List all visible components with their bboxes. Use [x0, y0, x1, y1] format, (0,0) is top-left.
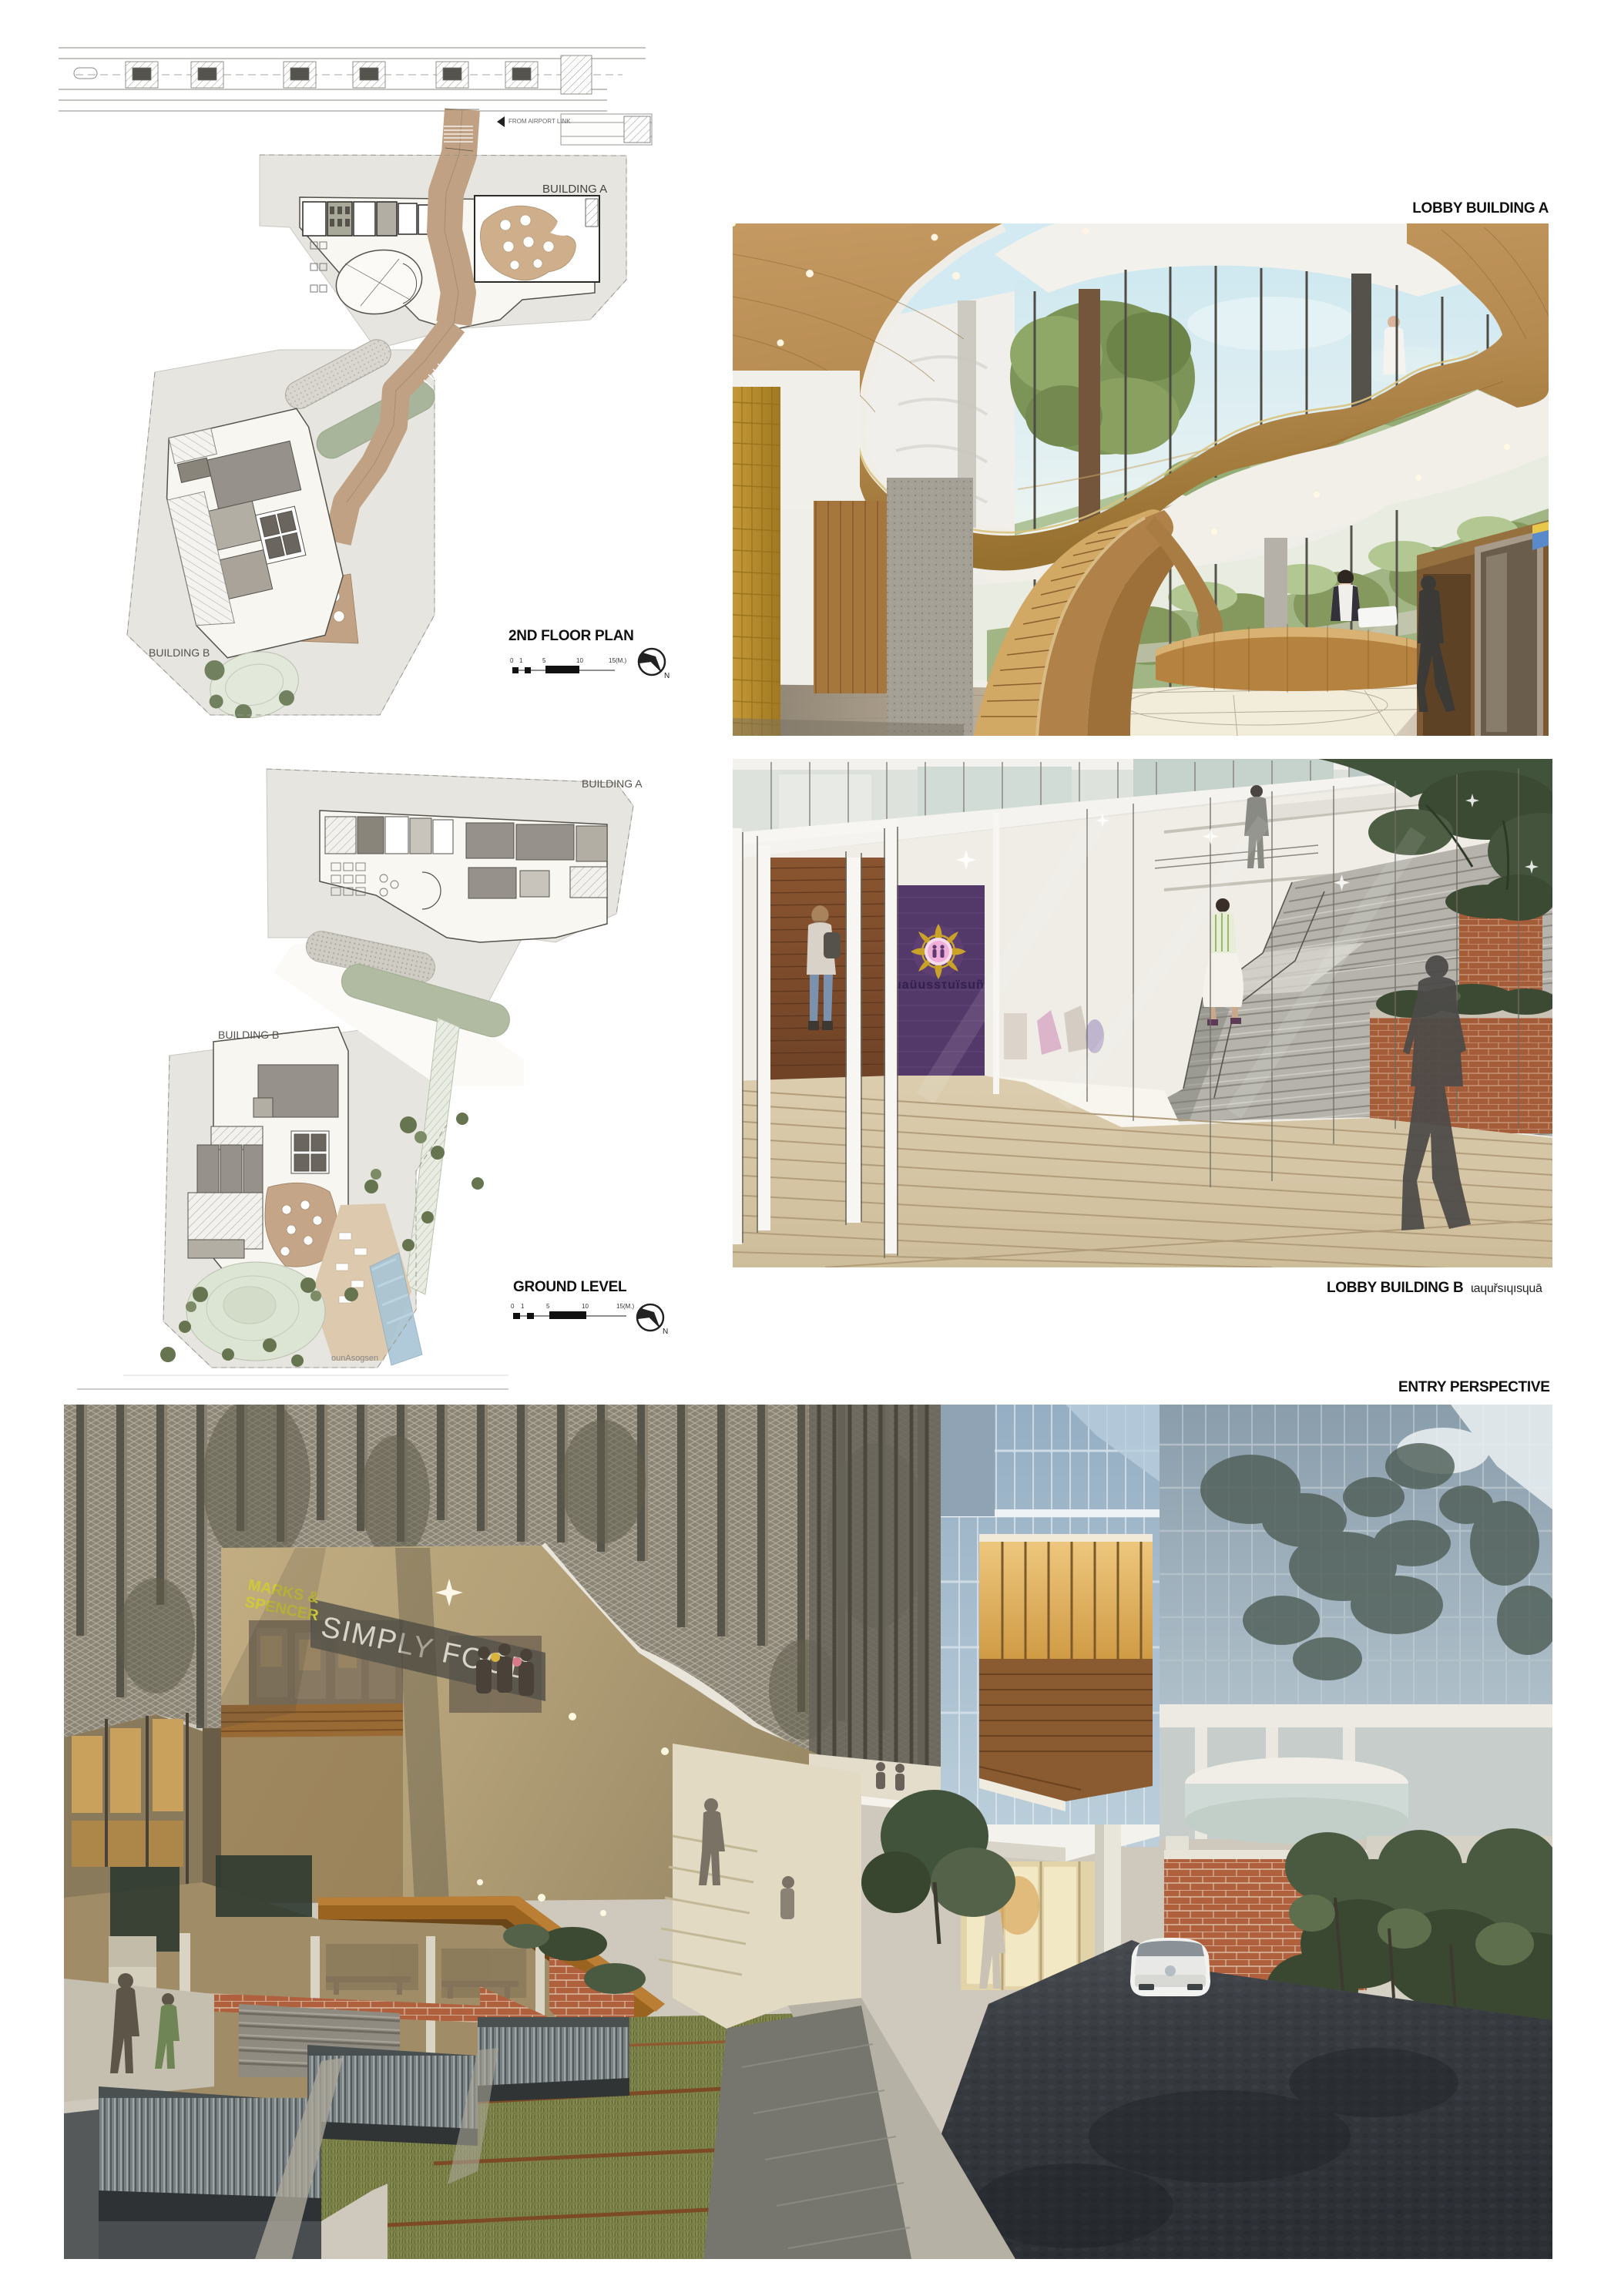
- svg-text:1: 1: [521, 1303, 525, 1310]
- svg-text:0: 0: [510, 657, 514, 664]
- svg-text:5: 5: [546, 1303, 550, 1310]
- svg-text:N: N: [664, 672, 670, 680]
- svg-text:5: 5: [542, 657, 546, 664]
- svg-text:10: 10: [582, 1303, 589, 1310]
- svg-text:15(M.): 15(M.): [616, 1303, 634, 1310]
- svg-text:BUILDING A: BUILDING A: [542, 183, 607, 196]
- svg-text:15(M.): 15(M.): [609, 657, 626, 664]
- svg-text:uaüussτuïsuñ: uaüussτuïsuñ: [894, 978, 985, 992]
- svg-text:1: 1: [519, 657, 523, 664]
- svg-text:BUILDING B: BUILDING B: [218, 1029, 279, 1041]
- svg-text:FROM AIRPORT LINK: FROM AIRPORT LINK: [508, 118, 571, 125]
- svg-text:BUILDING B: BUILDING B: [149, 646, 210, 659]
- svg-text:BUILDING A: BUILDING A: [582, 777, 643, 790]
- svg-text:ounAsogsen: ounAsogsen: [331, 1354, 378, 1363]
- svg-text:N: N: [663, 1328, 668, 1336]
- svg-text:0: 0: [511, 1303, 515, 1310]
- svg-text:10: 10: [576, 657, 583, 664]
